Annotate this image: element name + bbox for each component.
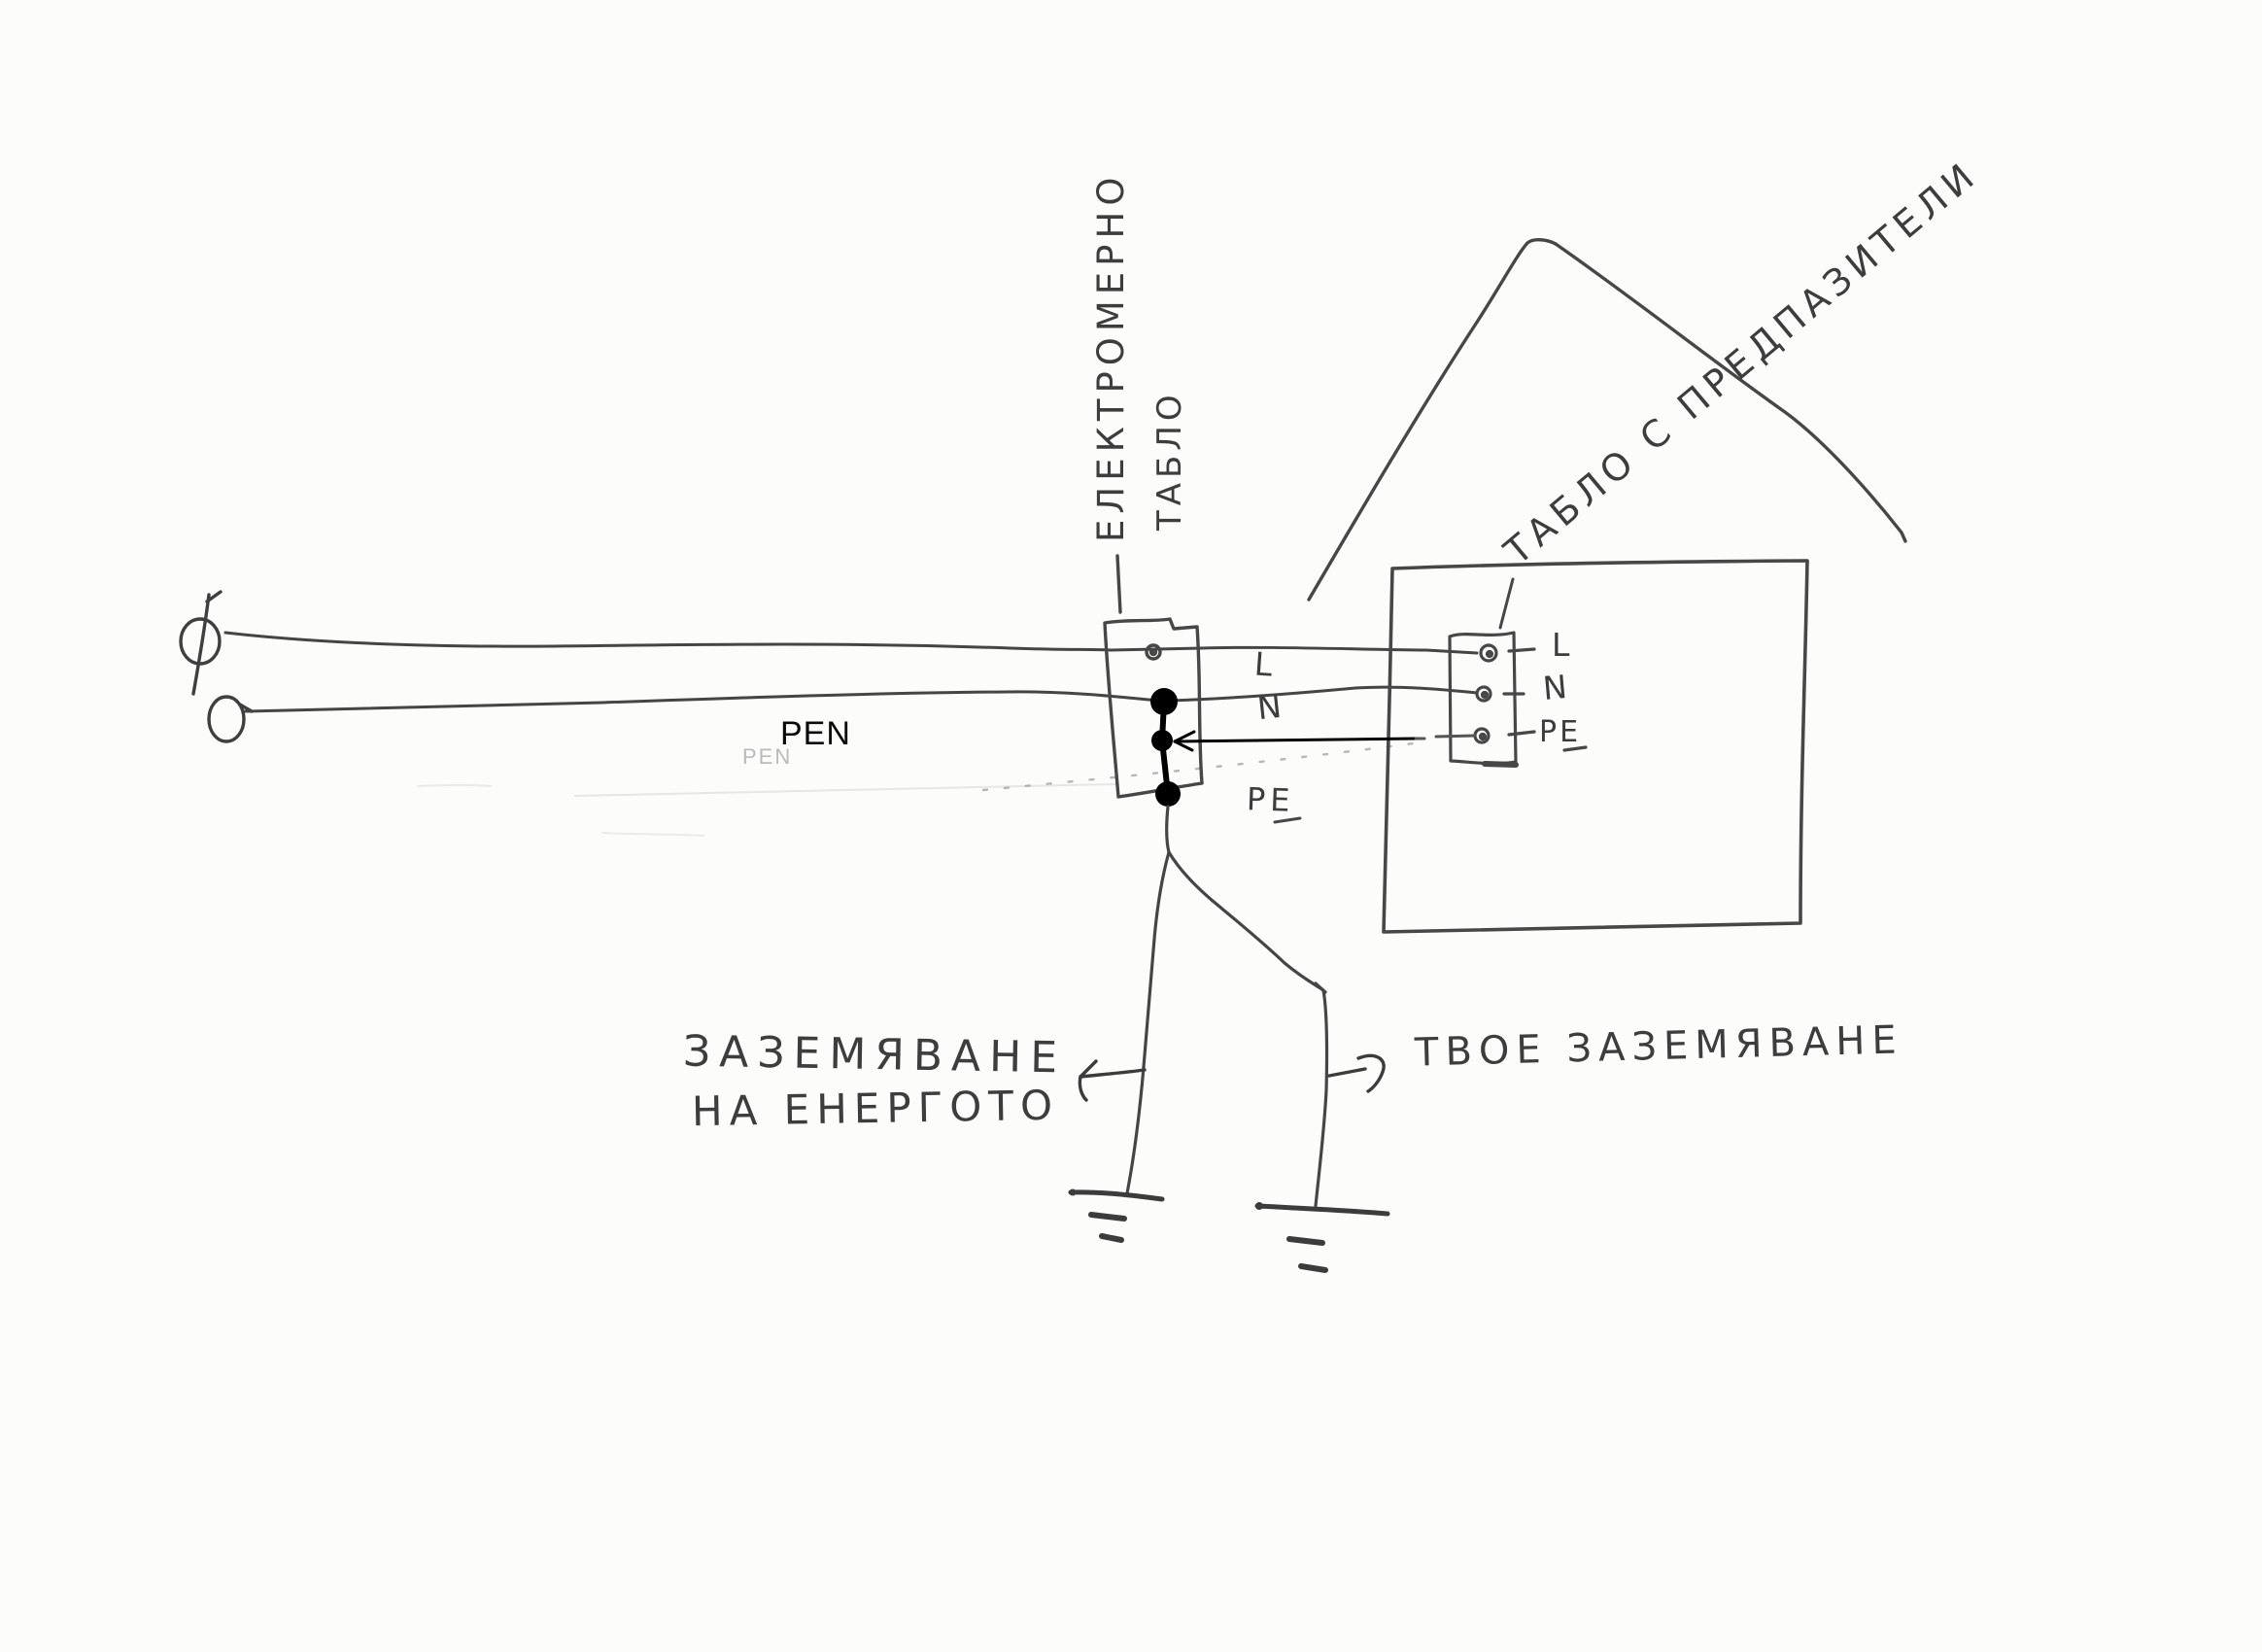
wire-label-pe-mid: PE: [1246, 780, 1295, 819]
pe-arrow: [1175, 732, 1416, 750]
pen-label-ghost: PEN: [742, 744, 792, 770]
meter-title-leader-line: [1117, 556, 1120, 612]
earthing-wires: [1127, 807, 1327, 1206]
fuse-terminal-label-n: N: [1541, 668, 1568, 707]
grounding-left-text-line1: ЗАЗЕМЯВАНЕ: [683, 1027, 1067, 1084]
fuse-terminal-label-pe: PE: [1539, 715, 1581, 749]
left-pointer-arrow-icon: [1080, 1061, 1145, 1100]
meter-board-title-line2: ТАБЛО: [1150, 390, 1189, 531]
fuse-title-pointer-line: [1500, 579, 1513, 628]
wire-label-n-mid: N: [1255, 687, 1284, 727]
fuse-board-box: [1384, 561, 1807, 932]
phase-source-icon: [181, 592, 221, 694]
pe-wire-dashes: [1416, 736, 1475, 739]
neutral-source-icon: [209, 697, 252, 741]
n-pen-wire: [245, 687, 1477, 711]
meter-box: [1105, 556, 1202, 797]
pen-junction-dots: [1150, 688, 1181, 807]
right-pointer-arrow-icon: [1329, 1055, 1384, 1091]
earth-symbol-right-icon: [1255, 1202, 1388, 1270]
scanned-diagram-page: ЕЛЕКТРОМЕРНО ТАБЛО ТАБЛО С ПРЕДПАЗИТЕЛИ …: [0, 0, 2262, 1652]
wire-label-l-mid: L: [1253, 644, 1274, 683]
grounding-left-text-line2: НА ЕНЕРГОТО: [692, 1082, 1060, 1136]
fuse-terminal-label-l: L: [1552, 626, 1569, 664]
earth-symbol-left-icon: [1070, 1189, 1163, 1241]
l-wire: [225, 633, 1477, 653]
meter-board-title-line1: ЕЛЕКТРОМЕРНО: [1090, 172, 1132, 542]
